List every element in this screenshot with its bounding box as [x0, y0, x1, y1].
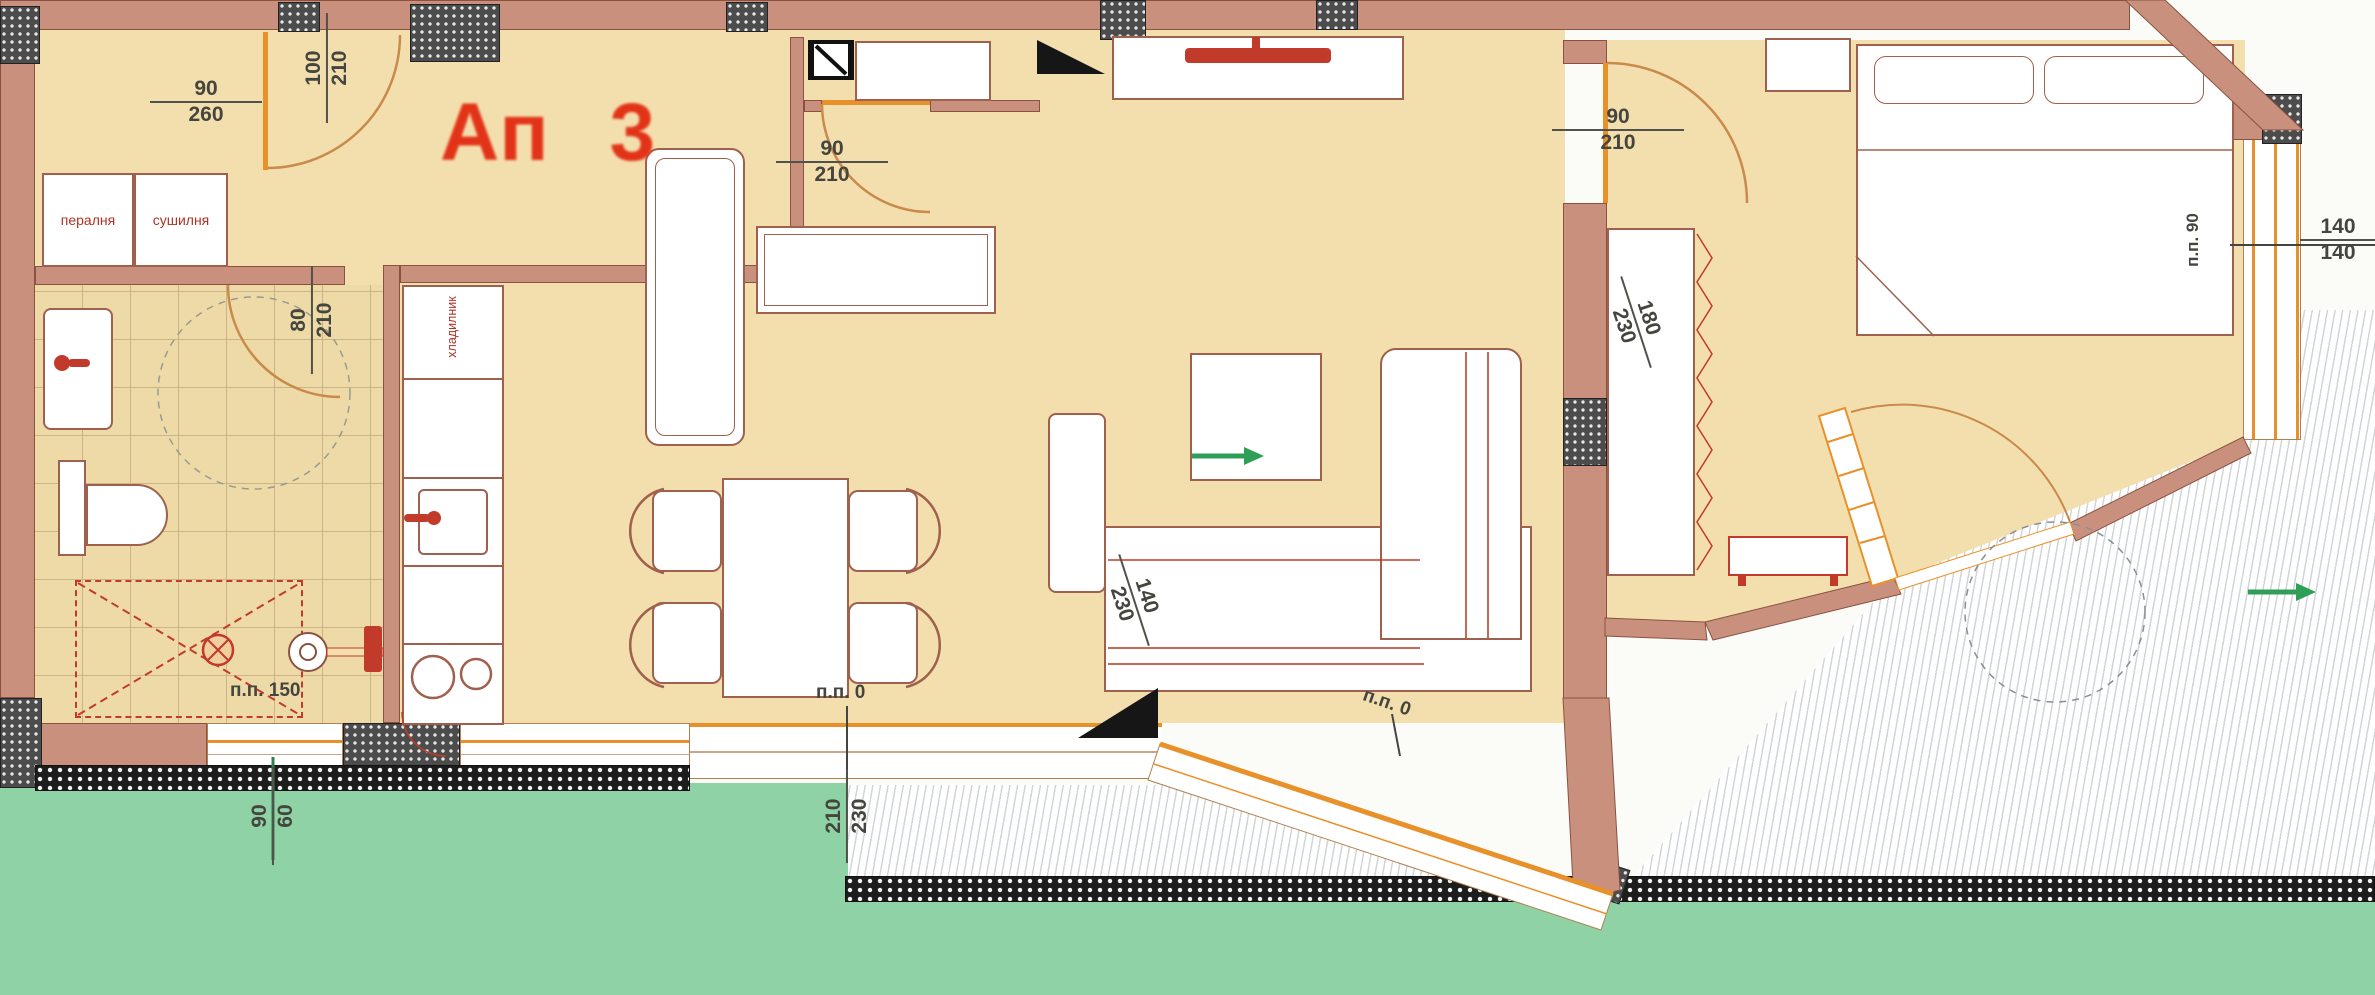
wall-entry-stub-left [804, 100, 822, 112]
dim-bottom: 210 [814, 163, 849, 186]
kitchen-sink [418, 489, 488, 555]
dining-chair-2 [652, 602, 722, 684]
dim-bath-door: 80 210 [288, 266, 336, 374]
bath-window [207, 723, 343, 767]
plinth-hatch-strip [35, 765, 690, 791]
dim-entry-door: 90 210 [776, 138, 888, 186]
dim-bottom: 60 [274, 804, 297, 827]
kitchen-divider-4 [403, 643, 503, 645]
toilet-bowl [86, 484, 168, 546]
wall-bath-bottom [35, 723, 207, 767]
dim-top: 80 [288, 266, 313, 374]
wall-entry-stub-right [930, 100, 1040, 112]
toilet-tank [58, 460, 86, 556]
pier-top-4 [1100, 0, 1146, 40]
washer-label: пералня [42, 212, 134, 228]
dining-chair-1 [652, 490, 722, 572]
dim-right-window: 140 140 [2300, 216, 2375, 264]
dim-bottom: 210 [313, 303, 336, 338]
bedroom-window-parapet-label: п.п. 90 [2183, 213, 2203, 267]
dim-bottom: 140 [2320, 241, 2355, 264]
shower-parapet-label: п.п. 150 [230, 680, 301, 702]
pier-top-3 [726, 2, 768, 32]
dining-chair-4 [848, 602, 918, 684]
sectional-seat-vertical [1380, 348, 1522, 640]
tv-stand [1252, 37, 1260, 49]
dim-top: 90 [1552, 106, 1684, 131]
dim-top: 100 [303, 13, 328, 123]
kitchen-divider-3 [403, 565, 503, 567]
pier-top-2 [410, 4, 500, 62]
dim-bottom: 230 [848, 799, 871, 834]
dim-top: 90 [150, 78, 262, 103]
tv-icon [1185, 48, 1331, 63]
dim-living-terrace-door: 210 230 [823, 769, 871, 863]
dining-chair-3 [848, 490, 918, 572]
dining-table [722, 478, 849, 698]
dim-top: 90 [249, 767, 274, 865]
console-table-inner [764, 234, 988, 306]
sofa-left-inner [655, 158, 735, 436]
wall-hall-living [400, 265, 810, 283]
bedroom-right-window [2243, 138, 2301, 440]
wall-left [0, 30, 35, 698]
wall-bedroom-pier-top [1563, 40, 1607, 64]
floor-plan: Ап 3 пералня сушилня хладилник 90 260 10… [0, 0, 2375, 995]
nightstand [1765, 38, 1851, 92]
pier-top-left [0, 6, 40, 64]
dim-bottom: 210 [1600, 131, 1635, 154]
bathroom-vanity [43, 308, 113, 430]
dining-window [460, 723, 690, 767]
pier-top-5 [1316, 0, 1358, 30]
dim-bedroom-door: 90 210 [1552, 106, 1684, 154]
dim-top: 90 [776, 138, 888, 163]
living-terrace-sliding-door [690, 723, 1162, 779]
pillow-1 [1874, 56, 2034, 104]
fridge-label: хладилник [445, 271, 459, 383]
dim-bottom: 260 [188, 103, 223, 126]
lawn-right [845, 900, 2375, 995]
dim-top: 210 [823, 769, 848, 863]
coffee-table [1190, 353, 1322, 481]
dim-top: 140 [2300, 216, 2375, 241]
lawn-left [0, 783, 848, 995]
bedroom-small-table [1728, 536, 1848, 576]
kitchen-divider-2 [403, 477, 503, 479]
dryer-label: сушилня [134, 212, 228, 228]
pillow-2 [2044, 56, 2204, 104]
dining-parapet-label: п.п. 0 [816, 682, 865, 704]
wall-bath-kitchen [383, 265, 400, 723]
apartment-title: Ап 3 [440, 86, 655, 180]
dim-bath-window: 90 60 [249, 767, 297, 865]
dim-bottom: 210 [328, 51, 351, 86]
pier-living-bedroom [1563, 398, 1607, 466]
dim-laundry-window: 90 260 [150, 78, 262, 126]
pier-right [2262, 94, 2302, 144]
dim-hall-door: 100 210 [303, 13, 351, 123]
